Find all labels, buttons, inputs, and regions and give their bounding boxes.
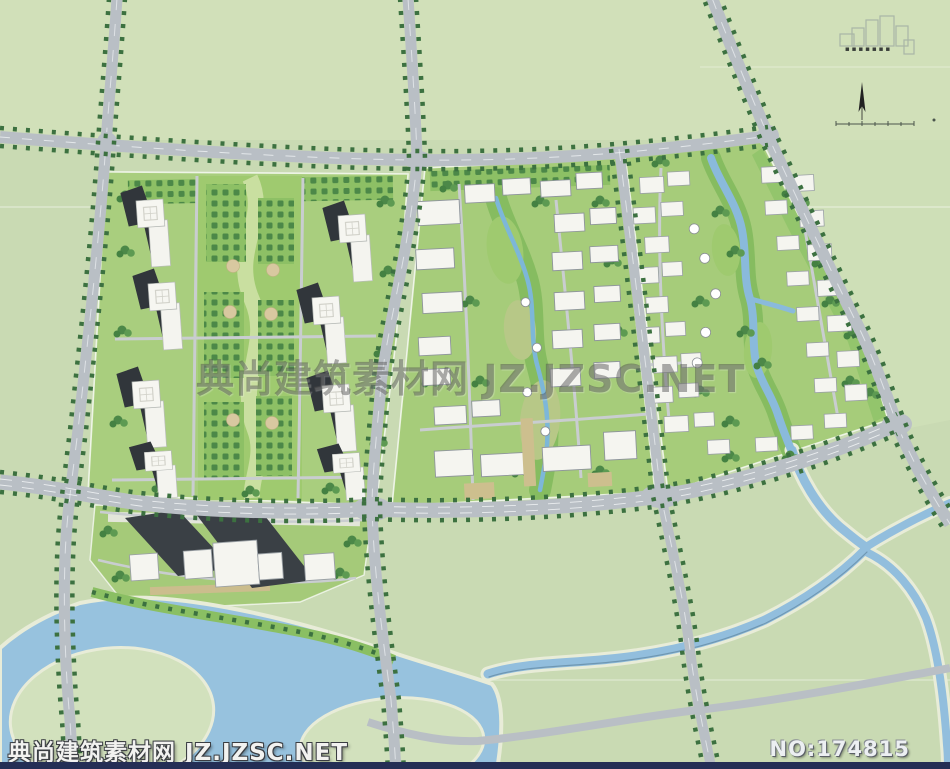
image-number: NO:174815 [770, 737, 911, 761]
bottom-bar [0, 762, 950, 769]
site-plan-image: ▪▪▪▪▪▪▪ 典尚建筑素材网 JZ.JZSC.NET 典尚建筑素材网 JZ.J… [0, 0, 950, 769]
company-name-text: ▪▪▪▪▪▪▪ [845, 45, 892, 53]
watermark-center: 典尚建筑素材网 JZ.JZSC.NET [196, 348, 796, 403]
